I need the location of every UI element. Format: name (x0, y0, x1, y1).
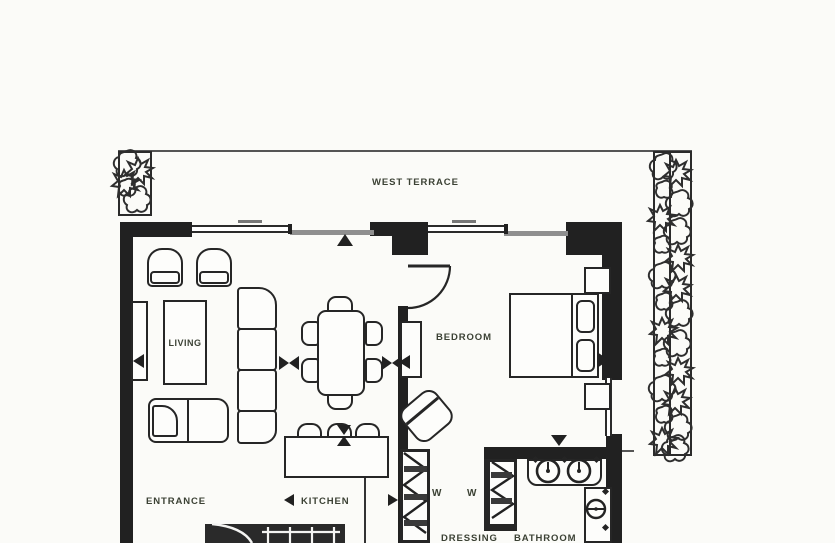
planter-box-right (653, 151, 692, 456)
armchair-cushion (150, 271, 180, 284)
room-label-dressing: DRESSING (441, 533, 498, 543)
room-label-living: LIVING (168, 338, 201, 348)
dining-chair (365, 358, 383, 383)
wardrobe-label-left: W (432, 488, 442, 499)
wall-pier-middle-deep (392, 222, 428, 255)
sofa-section (237, 410, 277, 444)
marker-dresser (399, 355, 410, 369)
wall-stub-right (622, 450, 634, 452)
wardrobe-label-right: W (467, 488, 477, 499)
glass-dash-a (238, 220, 262, 223)
sofa-section (237, 328, 277, 371)
wardrobe-right (484, 459, 517, 531)
bedroom-dresser (400, 321, 422, 378)
bedroom-armchair-backrest (406, 397, 439, 425)
marker-island-down (337, 425, 351, 435)
window-cap (188, 224, 192, 234)
wall-top-left (120, 222, 192, 237)
sofa-section (237, 369, 277, 412)
living-rug: LIVING (163, 300, 207, 385)
vanity (527, 459, 602, 486)
planter-box-left (118, 151, 152, 216)
room-label-bedroom: BEDROOM (436, 332, 492, 343)
loveseat (148, 398, 229, 443)
glass-dash-b (452, 220, 476, 223)
bed (509, 293, 599, 378)
bedroom-door (408, 266, 450, 308)
armchair (196, 248, 232, 287)
console-table (131, 301, 148, 381)
room-label-bathroom: BATHROOM (514, 533, 576, 543)
marker-dining-right-r (382, 356, 392, 370)
marker-kitchen-right (388, 494, 398, 506)
window-cap (288, 224, 292, 234)
loveseat-divider (187, 400, 189, 441)
nightstand (584, 267, 611, 294)
room-label-entrance: ENTRANCE (146, 496, 206, 507)
wardrobe-left (400, 449, 430, 543)
sliding-glass-bedroom (504, 231, 568, 236)
sliding-glass-living (290, 230, 374, 235)
wall-left (120, 222, 133, 543)
marker-top-wall (337, 234, 353, 246)
marker-island-up (337, 436, 351, 446)
dining-chair (365, 321, 383, 346)
marker-living-wall (133, 354, 144, 368)
window-cap (504, 224, 508, 234)
window-living (190, 225, 290, 233)
bed-headboard-line (571, 295, 573, 376)
wall-bathroom-top (484, 447, 622, 459)
planter-right-inner-line (669, 151, 671, 456)
dining-table (317, 310, 365, 396)
marker-dining-left-r (279, 356, 289, 370)
pillow (576, 339, 595, 372)
room-label-terrace: WEST TERRACE (372, 177, 459, 188)
loveseat-cushion (152, 405, 178, 437)
kitchen-counter-unit (205, 524, 345, 543)
marker-dining-left-l (289, 356, 299, 370)
pillow (576, 300, 595, 333)
sofa-section (237, 287, 277, 330)
armchair (147, 248, 183, 287)
marker-kitchen-left (284, 494, 294, 506)
floor-plan: WEST TERRACE LIVING (0, 0, 835, 543)
armchair-cushion (199, 271, 229, 284)
toilet (584, 487, 612, 543)
marker-bathroom-down (551, 435, 567, 446)
terrace-edge-line (118, 150, 692, 152)
window-bedroom (426, 225, 506, 233)
nightstand (584, 383, 611, 410)
kitchen-dressing-divider (364, 478, 366, 543)
marker-bed (597, 352, 609, 368)
window-cap (424, 224, 428, 234)
room-label-kitchen: KITCHEN (301, 496, 350, 507)
